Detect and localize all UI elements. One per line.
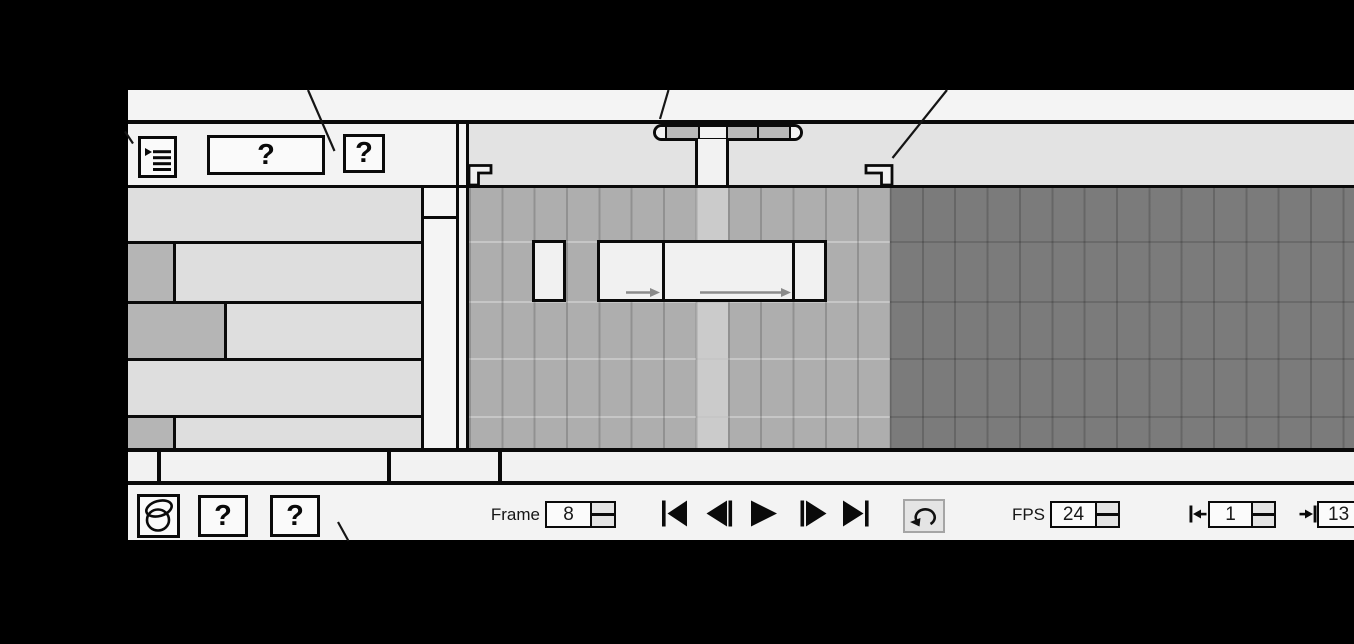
timeline-hscroll-left-button[interactable] xyxy=(469,452,498,481)
loop-icon xyxy=(907,503,941,529)
loop-playback-button[interactable] xyxy=(903,499,945,533)
range-end-value: 13 xyxy=(1328,504,1349,526)
header-small-placeholder[interactable]: ? xyxy=(343,134,385,173)
frame-label-text: Frame xyxy=(491,505,540,525)
range-end-icon xyxy=(1299,505,1317,523)
grid-column-lines xyxy=(469,188,1354,448)
range-start-field[interactable]: 1 xyxy=(1208,501,1253,528)
layer-row-3[interactable] xyxy=(128,304,421,358)
frame-label: Frame xyxy=(445,505,540,525)
layer-5-selected-block xyxy=(128,418,176,448)
scroll-strip xyxy=(128,452,1354,481)
layer-row-2[interactable] xyxy=(128,244,421,301)
fps-stepper-up[interactable] xyxy=(1097,503,1118,513)
layer-3-selected-block xyxy=(128,304,227,358)
tween-span-frames-7-10[interactable] xyxy=(662,240,795,302)
layer-row-4[interactable] xyxy=(128,361,421,415)
frame-number-value: 8 xyxy=(563,504,574,526)
frame-stepper-down[interactable] xyxy=(592,516,614,526)
range-start-icon xyxy=(1189,505,1207,523)
layers-hscroll-left-button[interactable] xyxy=(128,452,157,481)
onion-skin-icon xyxy=(141,498,176,534)
step-back-icon xyxy=(704,500,734,527)
range-start-stepper-up[interactable] xyxy=(1253,503,1274,513)
fps-field[interactable]: 24 xyxy=(1050,501,1097,528)
capsule-end-cap-right xyxy=(791,127,800,138)
onion-marker-right-2[interactable] xyxy=(759,127,791,138)
play-button[interactable] xyxy=(748,500,780,527)
fps-label: FPS xyxy=(983,505,1045,525)
jump-to-start-button[interactable] xyxy=(660,500,690,527)
panel-menu-button[interactable] xyxy=(138,136,177,178)
fps-stepper-down[interactable] xyxy=(1097,516,1118,526)
capsule-end-cap-left xyxy=(656,127,665,138)
jump-to-start-icon xyxy=(660,500,690,527)
fps-stepper[interactable] xyxy=(1095,501,1120,528)
transport-placeholder-b-text: ? xyxy=(286,500,304,533)
header-name-placeholder-text: ? xyxy=(257,139,275,172)
jump-to-end-button[interactable] xyxy=(841,500,871,527)
layers-panel xyxy=(128,188,421,448)
layer-row-5[interactable] xyxy=(128,418,421,448)
timeline-schematic: ? ? xyxy=(0,0,1354,644)
frame-grid[interactable] xyxy=(469,188,1354,448)
play-icon xyxy=(748,500,780,527)
timeline-hscroll-track[interactable] xyxy=(502,452,1354,481)
layer-2-selected-block xyxy=(128,244,176,301)
onion-marker-left[interactable] xyxy=(665,127,700,138)
layers-hscroll-thumb[interactable] xyxy=(161,452,387,481)
transport-placeholder-b[interactable]: ? xyxy=(270,495,320,537)
transport-placeholder-a[interactable]: ? xyxy=(198,495,248,537)
keyframe-span-frame-11[interactable] xyxy=(792,240,827,302)
panel-menu-icon xyxy=(143,142,173,172)
range-start-value: 1 xyxy=(1225,504,1236,526)
step-forward-icon xyxy=(799,500,829,527)
header-name-placeholder[interactable]: ? xyxy=(207,135,325,175)
fps-label-text: FPS xyxy=(1012,505,1045,525)
transport-placeholder-a-text: ? xyxy=(214,500,232,533)
onion-marker-right-1[interactable] xyxy=(726,127,759,138)
keyframe-span-frame-3[interactable] xyxy=(532,240,566,302)
top-strip xyxy=(128,90,1354,121)
vertical-scrollbar-up-button[interactable] xyxy=(424,188,456,219)
tween-span-frames-5-6[interactable] xyxy=(597,240,665,302)
frame-ruler[interactable] xyxy=(469,124,1354,185)
frame-stepper-up[interactable] xyxy=(592,503,614,513)
panel-splitter-gap xyxy=(459,124,466,485)
frame-number-stepper[interactable] xyxy=(590,501,616,528)
range-start-stepper-down[interactable] xyxy=(1253,516,1274,526)
frame-number-field[interactable]: 8 xyxy=(545,501,592,528)
step-back-button[interactable] xyxy=(704,500,734,527)
onion-skin-button[interactable] xyxy=(137,494,180,538)
layers-hscroll-right-button[interactable] xyxy=(391,452,421,481)
range-end-field[interactable]: 13 xyxy=(1317,501,1354,528)
range-start-stepper[interactable] xyxy=(1251,501,1276,528)
vertical-scrollbar-track[interactable] xyxy=(424,188,456,448)
playhead[interactable] xyxy=(695,139,730,186)
header-small-placeholder-text: ? xyxy=(355,137,373,170)
jump-to-end-icon xyxy=(841,500,871,527)
step-forward-button[interactable] xyxy=(799,500,829,527)
vertical-scrollbar-down-button[interactable] xyxy=(424,452,456,481)
panel-splitter-line-left[interactable] xyxy=(456,124,459,485)
layer-row-1[interactable] xyxy=(128,188,421,241)
fps-value: 24 xyxy=(1063,504,1084,526)
capsule-playhead-gap xyxy=(700,127,726,138)
